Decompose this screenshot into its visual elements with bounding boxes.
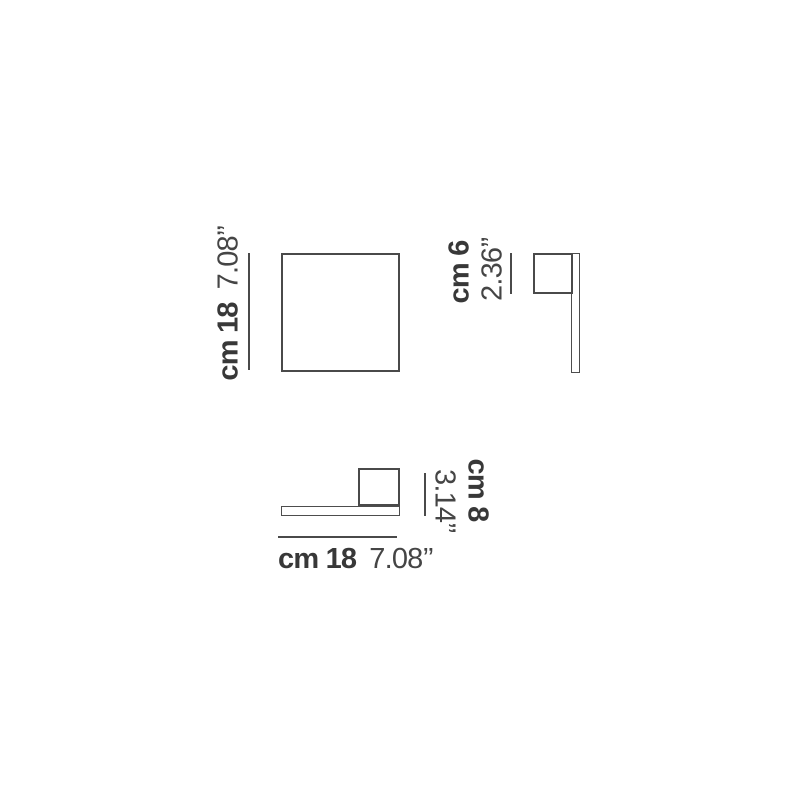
front-height-dimension-label: cm 187.08’’: [215, 225, 244, 380]
front-height-metric-value: cm 18: [213, 302, 245, 380]
side-depth-metric-value: cm 6: [444, 241, 476, 304]
side-depth-imperial-value: 2.36’’: [477, 237, 509, 301]
plan-depth-imperial-label: 3.14’’: [430, 469, 459, 533]
front-view-panel-outline: [281, 253, 400, 372]
plan-view-head-outline: [358, 468, 400, 506]
plan-view-baseplate-outline: [281, 506, 400, 516]
side-depth-imperial-label: 2.36’’: [479, 237, 508, 301]
plan-depth-metric-label: cm 8: [463, 459, 492, 522]
plan-width-dimension-label: cm 187.08’’: [278, 545, 433, 574]
side-depth-metric-label: cm 6: [446, 241, 475, 304]
plan-width-imperial-value: 7.08’’: [369, 543, 433, 575]
plan-width-dimension-line: [278, 536, 397, 538]
side-depth-dimension-line: [510, 253, 512, 294]
front-height-imperial-value: 7.08’’: [213, 225, 245, 289]
front-height-dimension-line: [248, 253, 250, 370]
side-view-head-outline: [533, 253, 573, 294]
plan-depth-metric-value: cm 8: [462, 459, 494, 522]
plan-depth-dimension-line: [424, 473, 426, 516]
plan-width-metric-value: cm 18: [278, 543, 356, 575]
dimension-diagram: cm 187.08’’ cm 6 2.36’’ cm 187.08’’ 3.14…: [0, 0, 800, 800]
plan-depth-imperial-value: 3.14’’: [429, 469, 461, 533]
